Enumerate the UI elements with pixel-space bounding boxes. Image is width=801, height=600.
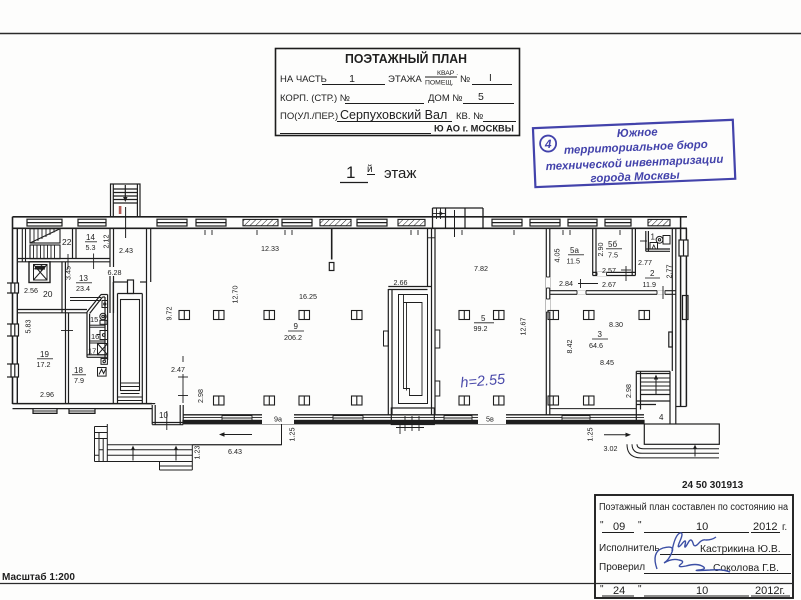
svg-text:8.45: 8.45: [600, 358, 614, 367]
svg-text:Кастрикина Ю.В.: Кастрикина Ю.В.: [700, 544, 781, 555]
svg-text:h=2.55: h=2.55: [460, 372, 507, 392]
svg-text:17.2: 17.2: [37, 360, 51, 369]
svg-text:09: 09: [613, 521, 625, 533]
svg-text:1: 1: [346, 163, 355, 182]
svg-text:7.9: 7.9: [74, 376, 84, 385]
svg-text:5.3: 5.3: [86, 243, 96, 252]
svg-text:2012г.: 2012г.: [755, 585, 785, 597]
svg-text:2012: 2012: [753, 521, 777, 533]
svg-text:20: 20: [43, 289, 53, 299]
svg-text:Ю АО г. МОСКВЫ: Ю АО г. МОСКВЫ: [434, 124, 514, 134]
svg-text:ЭТАЖА: ЭТАЖА: [388, 74, 422, 85]
svg-text:13: 13: [79, 274, 88, 283]
svg-text:Серпуховский Вал: Серпуховский Вал: [340, 108, 447, 122]
svg-text:5в: 5в: [486, 415, 494, 424]
svg-text:16.25: 16.25: [299, 292, 317, 301]
svg-text:11.5: 11.5: [567, 257, 580, 266]
svg-text:9: 9: [294, 322, 299, 331]
svg-text:й: й: [367, 164, 373, 175]
svg-text:12.33: 12.33: [261, 244, 279, 253]
svg-text:города Москвы: города Москвы: [590, 170, 680, 186]
svg-text:2.12: 2.12: [102, 235, 111, 249]
svg-text:Поэтажный план составлен по со: Поэтажный план составлен по состоянию на: [599, 502, 789, 513]
svg-text:": ": [600, 584, 604, 595]
svg-text:19: 19: [40, 350, 49, 359]
svg-text:24 50 301913: 24 50 301913: [682, 480, 744, 491]
svg-text:3.02: 3.02: [604, 444, 618, 453]
svg-text:2.98: 2.98: [624, 384, 633, 398]
svg-text:5: 5: [478, 91, 484, 103]
svg-text:16: 16: [91, 332, 99, 341]
svg-text:8.42: 8.42: [565, 340, 574, 354]
svg-text:2.77: 2.77: [638, 258, 652, 267]
svg-text:2.47: 2.47: [171, 365, 185, 374]
svg-text:2.43: 2.43: [119, 246, 133, 255]
svg-text:г.: г.: [782, 522, 787, 533]
svg-text:1: 1: [651, 233, 656, 242]
svg-text:3: 3: [598, 330, 603, 339]
svg-text:2.96: 2.96: [40, 390, 54, 399]
svg-text:17: 17: [88, 347, 96, 356]
svg-text:4: 4: [659, 413, 664, 422]
svg-text:1.25: 1.25: [586, 428, 595, 442]
svg-text:2.90: 2.90: [596, 243, 605, 257]
svg-text:5.83: 5.83: [24, 320, 33, 334]
svg-text:ПОМЕЩ.: ПОМЕЩ.: [425, 80, 454, 87]
svg-text:": ": [638, 520, 642, 531]
svg-text:1: 1: [349, 73, 355, 85]
svg-text:7.82: 7.82: [474, 264, 488, 273]
svg-text:Соколова Г.В.: Соколова Г.В.: [713, 563, 779, 574]
svg-text:4: 4: [544, 137, 553, 151]
svg-text:6.28: 6.28: [108, 268, 122, 277]
svg-text:7.5: 7.5: [608, 251, 618, 260]
svg-text:3.45: 3.45: [64, 266, 73, 280]
svg-text:23.4: 23.4: [76, 284, 90, 293]
svg-text:КВАР .: КВАР .: [437, 70, 458, 77]
svg-text:12.70: 12.70: [231, 286, 240, 304]
svg-text:9.72: 9.72: [165, 307, 174, 321]
svg-text:15: 15: [90, 315, 98, 324]
svg-text:6.43: 6.43: [228, 447, 242, 456]
svg-text:КОРП. (СТР.) №: КОРП. (СТР.) №: [280, 93, 350, 104]
svg-text:Масштаб 1:200: Масштаб 1:200: [2, 571, 75, 583]
svg-text:10: 10: [696, 521, 708, 533]
svg-text:КВ. №: КВ. №: [456, 111, 483, 122]
svg-text:99.2: 99.2: [474, 324, 488, 333]
svg-text:9а: 9а: [274, 415, 282, 424]
svg-text:10: 10: [696, 585, 708, 597]
svg-text:№: №: [460, 74, 470, 85]
svg-text:4.05: 4.05: [553, 249, 562, 263]
svg-text:2: 2: [650, 269, 655, 278]
svg-text:5: 5: [481, 314, 486, 323]
svg-text:": ": [600, 520, 604, 531]
svg-text:2.67: 2.67: [602, 280, 616, 289]
svg-text:Проверил: Проверил: [599, 562, 645, 573]
svg-text:ДОМ №: ДОМ №: [428, 93, 463, 104]
svg-text:": ": [638, 584, 642, 595]
svg-text:2.84: 2.84: [559, 279, 573, 288]
svg-text:12.67: 12.67: [519, 318, 528, 336]
svg-text:2.57: 2.57: [602, 266, 616, 275]
svg-text:206.2: 206.2: [284, 333, 302, 342]
svg-text:2.56: 2.56: [24, 286, 38, 295]
svg-text:ПОЭТАЖНЫЙ ПЛАН: ПОЭТАЖНЫЙ ПЛАН: [345, 51, 467, 66]
svg-text:Исполнитель: Исполнитель: [599, 543, 660, 554]
svg-text:территориальное бюро: территориальное бюро: [564, 139, 708, 157]
svg-text:11.9: 11.9: [643, 280, 656, 289]
svg-text:этаж: этаж: [384, 165, 416, 182]
svg-text:14: 14: [86, 233, 95, 242]
svg-text:1.23: 1.23: [193, 446, 202, 460]
svg-text:1.25: 1.25: [288, 428, 297, 442]
svg-text:5б: 5б: [608, 240, 617, 249]
svg-text:Южное: Южное: [617, 126, 659, 140]
svg-text:5а: 5а: [570, 246, 579, 255]
svg-text:ПО(УЛ./ПЕР.): ПО(УЛ./ПЕР.): [280, 111, 338, 122]
svg-text:2.98: 2.98: [196, 389, 205, 403]
svg-text:24: 24: [613, 585, 625, 597]
svg-text:10: 10: [159, 411, 168, 420]
svg-text:НА ЧАСТЬ: НА ЧАСТЬ: [280, 74, 327, 85]
svg-text:18: 18: [74, 366, 83, 375]
svg-text:64.6: 64.6: [589, 341, 603, 350]
svg-text:I: I: [489, 73, 492, 84]
svg-text:2.77: 2.77: [665, 265, 674, 279]
svg-text:технической инвентаризации: технической инвентаризации: [545, 154, 723, 173]
svg-text:2.66: 2.66: [394, 278, 408, 287]
svg-text:8.30: 8.30: [609, 320, 623, 329]
svg-text:22: 22: [62, 237, 72, 247]
